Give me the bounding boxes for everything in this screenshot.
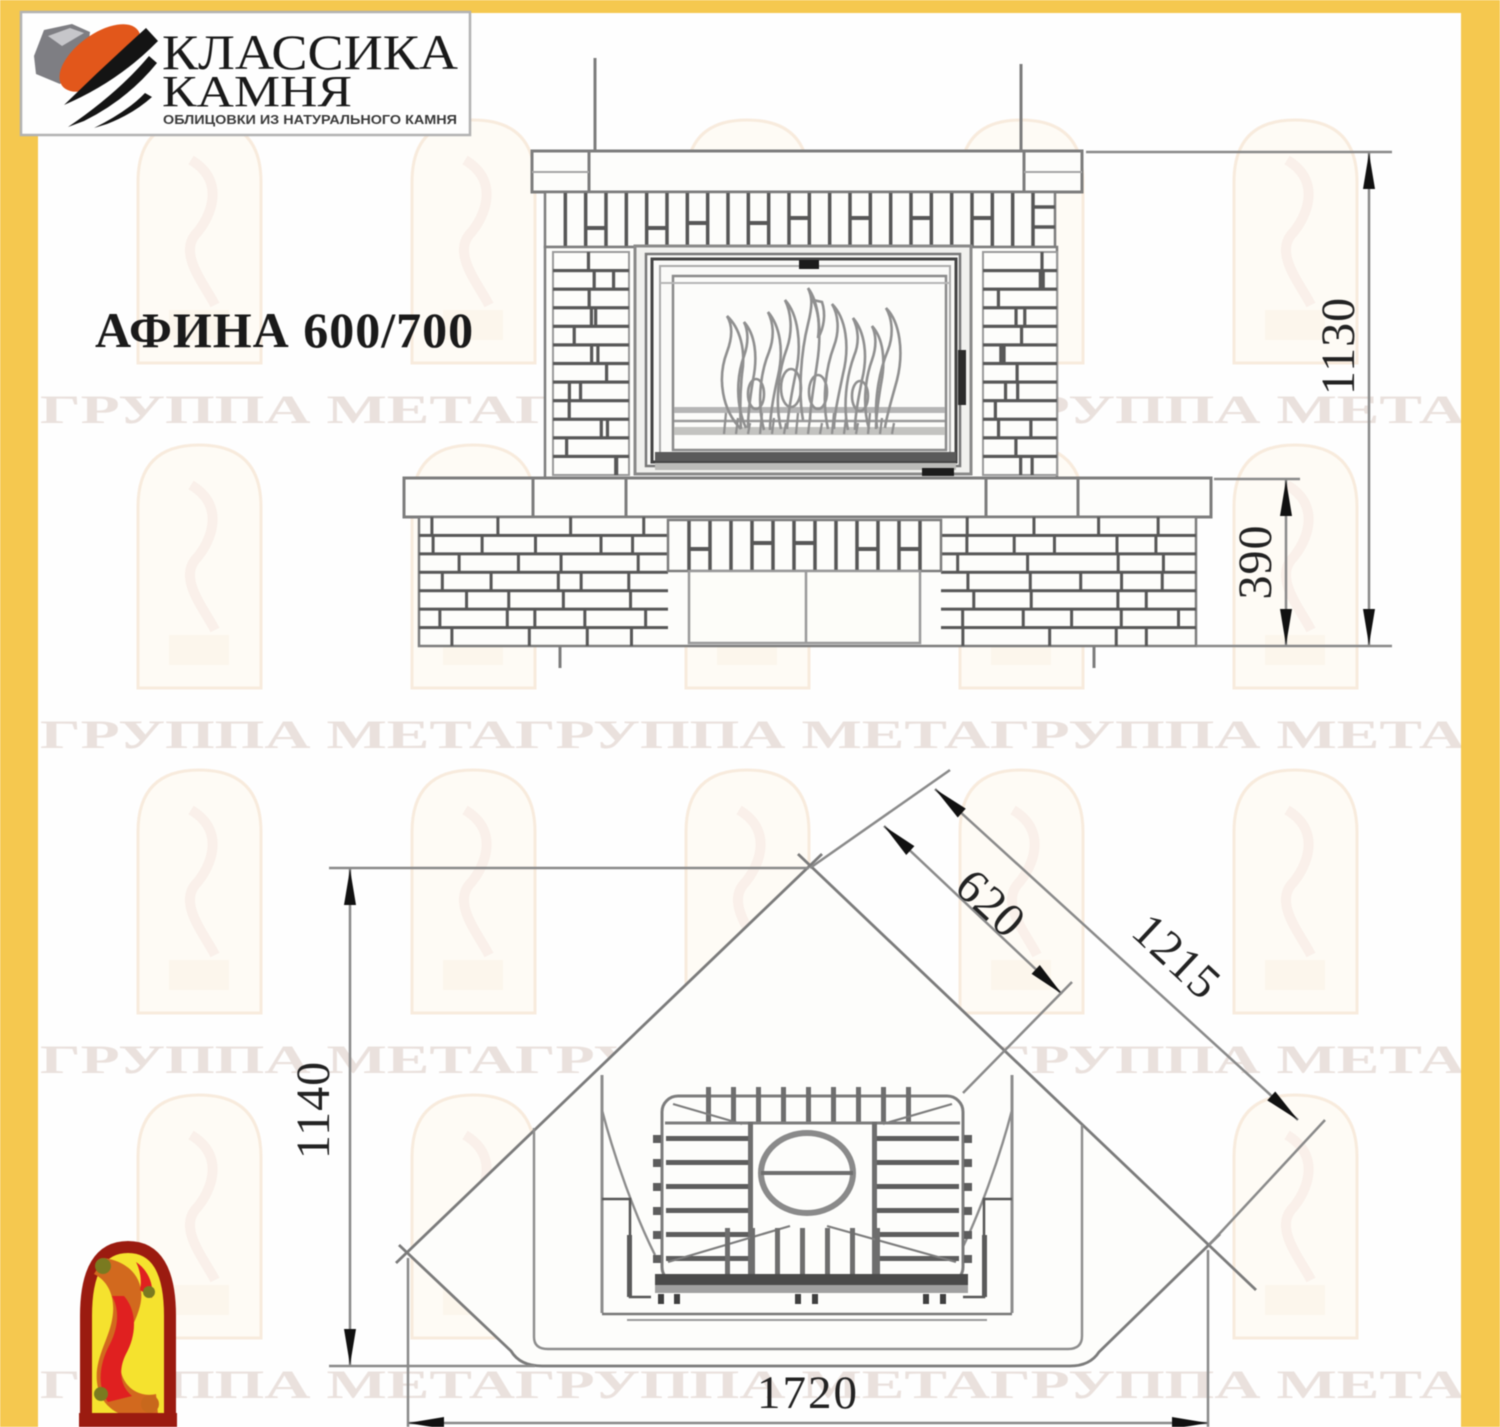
svg-text:1215: 1215 bbox=[1122, 903, 1231, 1010]
svg-text:КАМНЯ: КАМНЯ bbox=[162, 67, 352, 116]
svg-text:ГРУППА МЕТАГРУППА МЕТАГРУППА М: ГРУППА МЕТАГРУППА МЕТАГРУППА МЕТА bbox=[40, 712, 1465, 757]
svg-text:390: 390 bbox=[1229, 525, 1282, 600]
svg-text:ОБЛИЦОВКИ ИЗ НАТУРАЛЬНОГО КАМН: ОБЛИЦОВКИ ИЗ НАТУРАЛЬНОГО КАМНЯ bbox=[163, 112, 457, 127]
svg-text:1130: 1130 bbox=[1312, 297, 1365, 395]
svg-text:АФИНА 600/700: АФИНА 600/700 bbox=[95, 302, 474, 358]
svg-text:1720: 1720 bbox=[757, 1367, 859, 1419]
svg-text:1140: 1140 bbox=[287, 1061, 340, 1159]
svg-text:ГРУППА МЕТАГРУППА МЕТАГРУППА М: ГРУППА МЕТАГРУППА МЕТАГРУППА МЕТА bbox=[40, 1362, 1465, 1407]
